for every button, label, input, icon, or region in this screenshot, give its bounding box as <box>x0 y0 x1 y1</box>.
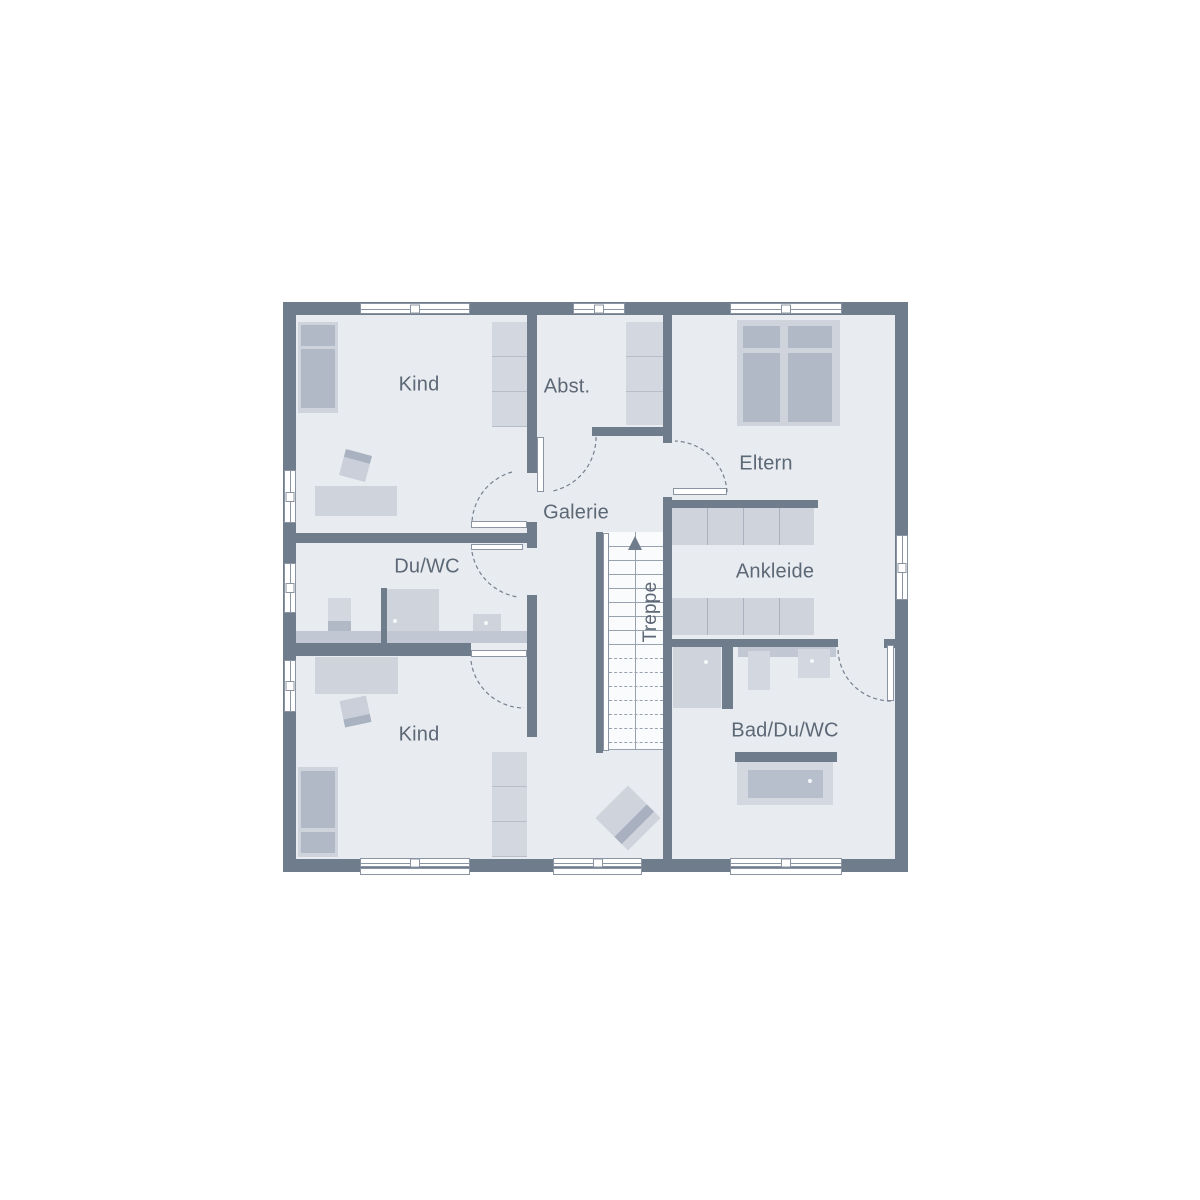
room-label-galerie: Galerie <box>543 502 609 525</box>
room-label-eltern: Eltern <box>739 453 792 476</box>
door-swing-arc <box>675 441 727 492</box>
room-label-bad-du-wc: Bad/Du/WC <box>731 720 838 743</box>
door-swing-arcs <box>0 0 1200 1200</box>
door-swing-arc <box>838 650 891 701</box>
door-swing-arc <box>472 552 518 597</box>
room-label-du-wc: Du/WC <box>394 556 459 579</box>
door-swing-arc <box>553 437 596 491</box>
room-label-kind-bottom: Kind <box>399 724 440 747</box>
door-swing-arc <box>471 661 524 708</box>
door-swing-arc <box>472 472 512 522</box>
room-label-kind-top: Kind <box>399 374 440 397</box>
room-label-ankleide: Ankleide <box>736 561 814 584</box>
room-label-treppe: Treppe <box>640 582 662 643</box>
floorplan-page: { "plan": { "type": "floorplan-upper-sto… <box>0 0 1200 1200</box>
room-label-abst: Abst. <box>544 376 591 399</box>
